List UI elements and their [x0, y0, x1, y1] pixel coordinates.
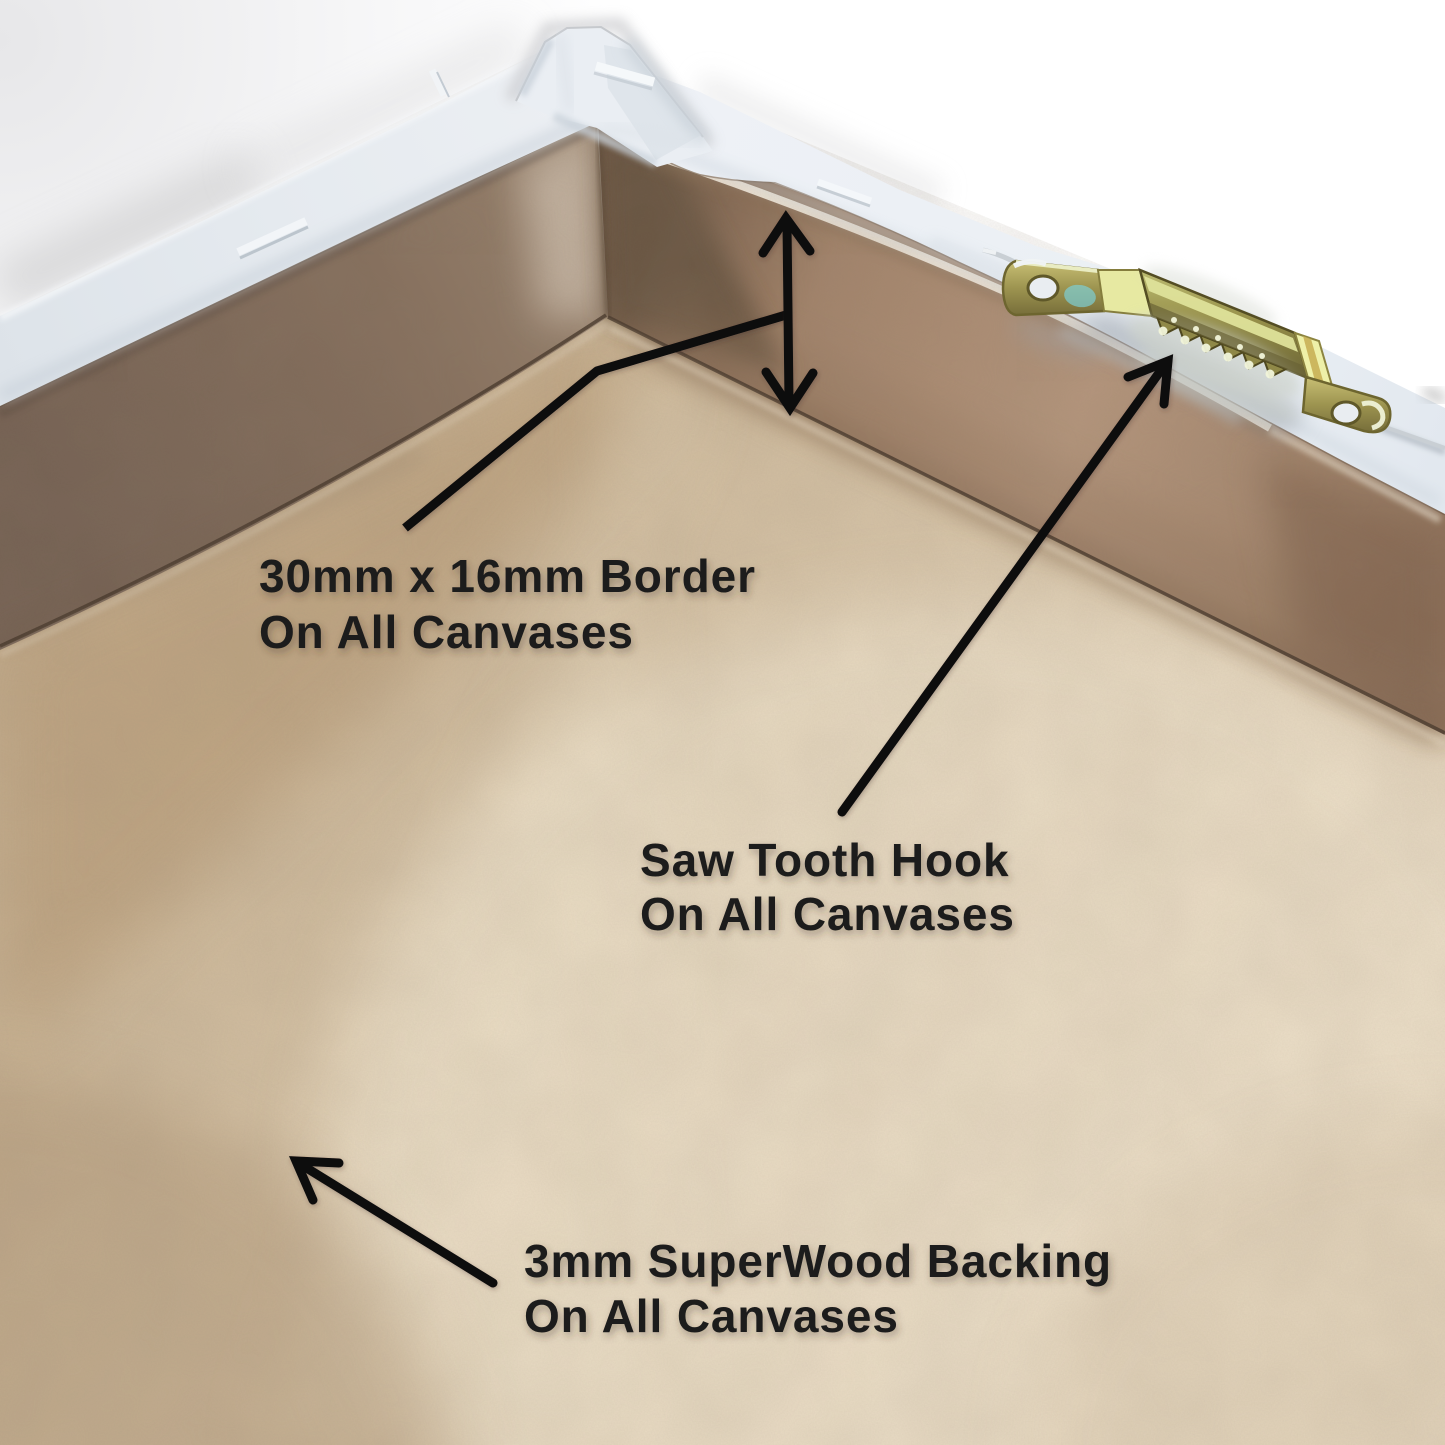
svg-text:On All Canvases: On All Canvases: [640, 888, 1015, 940]
svg-text:On All Canvases: On All Canvases: [524, 1290, 899, 1342]
svg-text:3mm SuperWood Backing: 3mm SuperWood Backing: [524, 1235, 1112, 1287]
svg-text:On All Canvases: On All Canvases: [259, 606, 634, 658]
svg-text:30mm x 16mm Border: 30mm x 16mm Border: [259, 550, 756, 602]
svg-text:Saw Tooth Hook: Saw Tooth Hook: [640, 834, 1010, 886]
